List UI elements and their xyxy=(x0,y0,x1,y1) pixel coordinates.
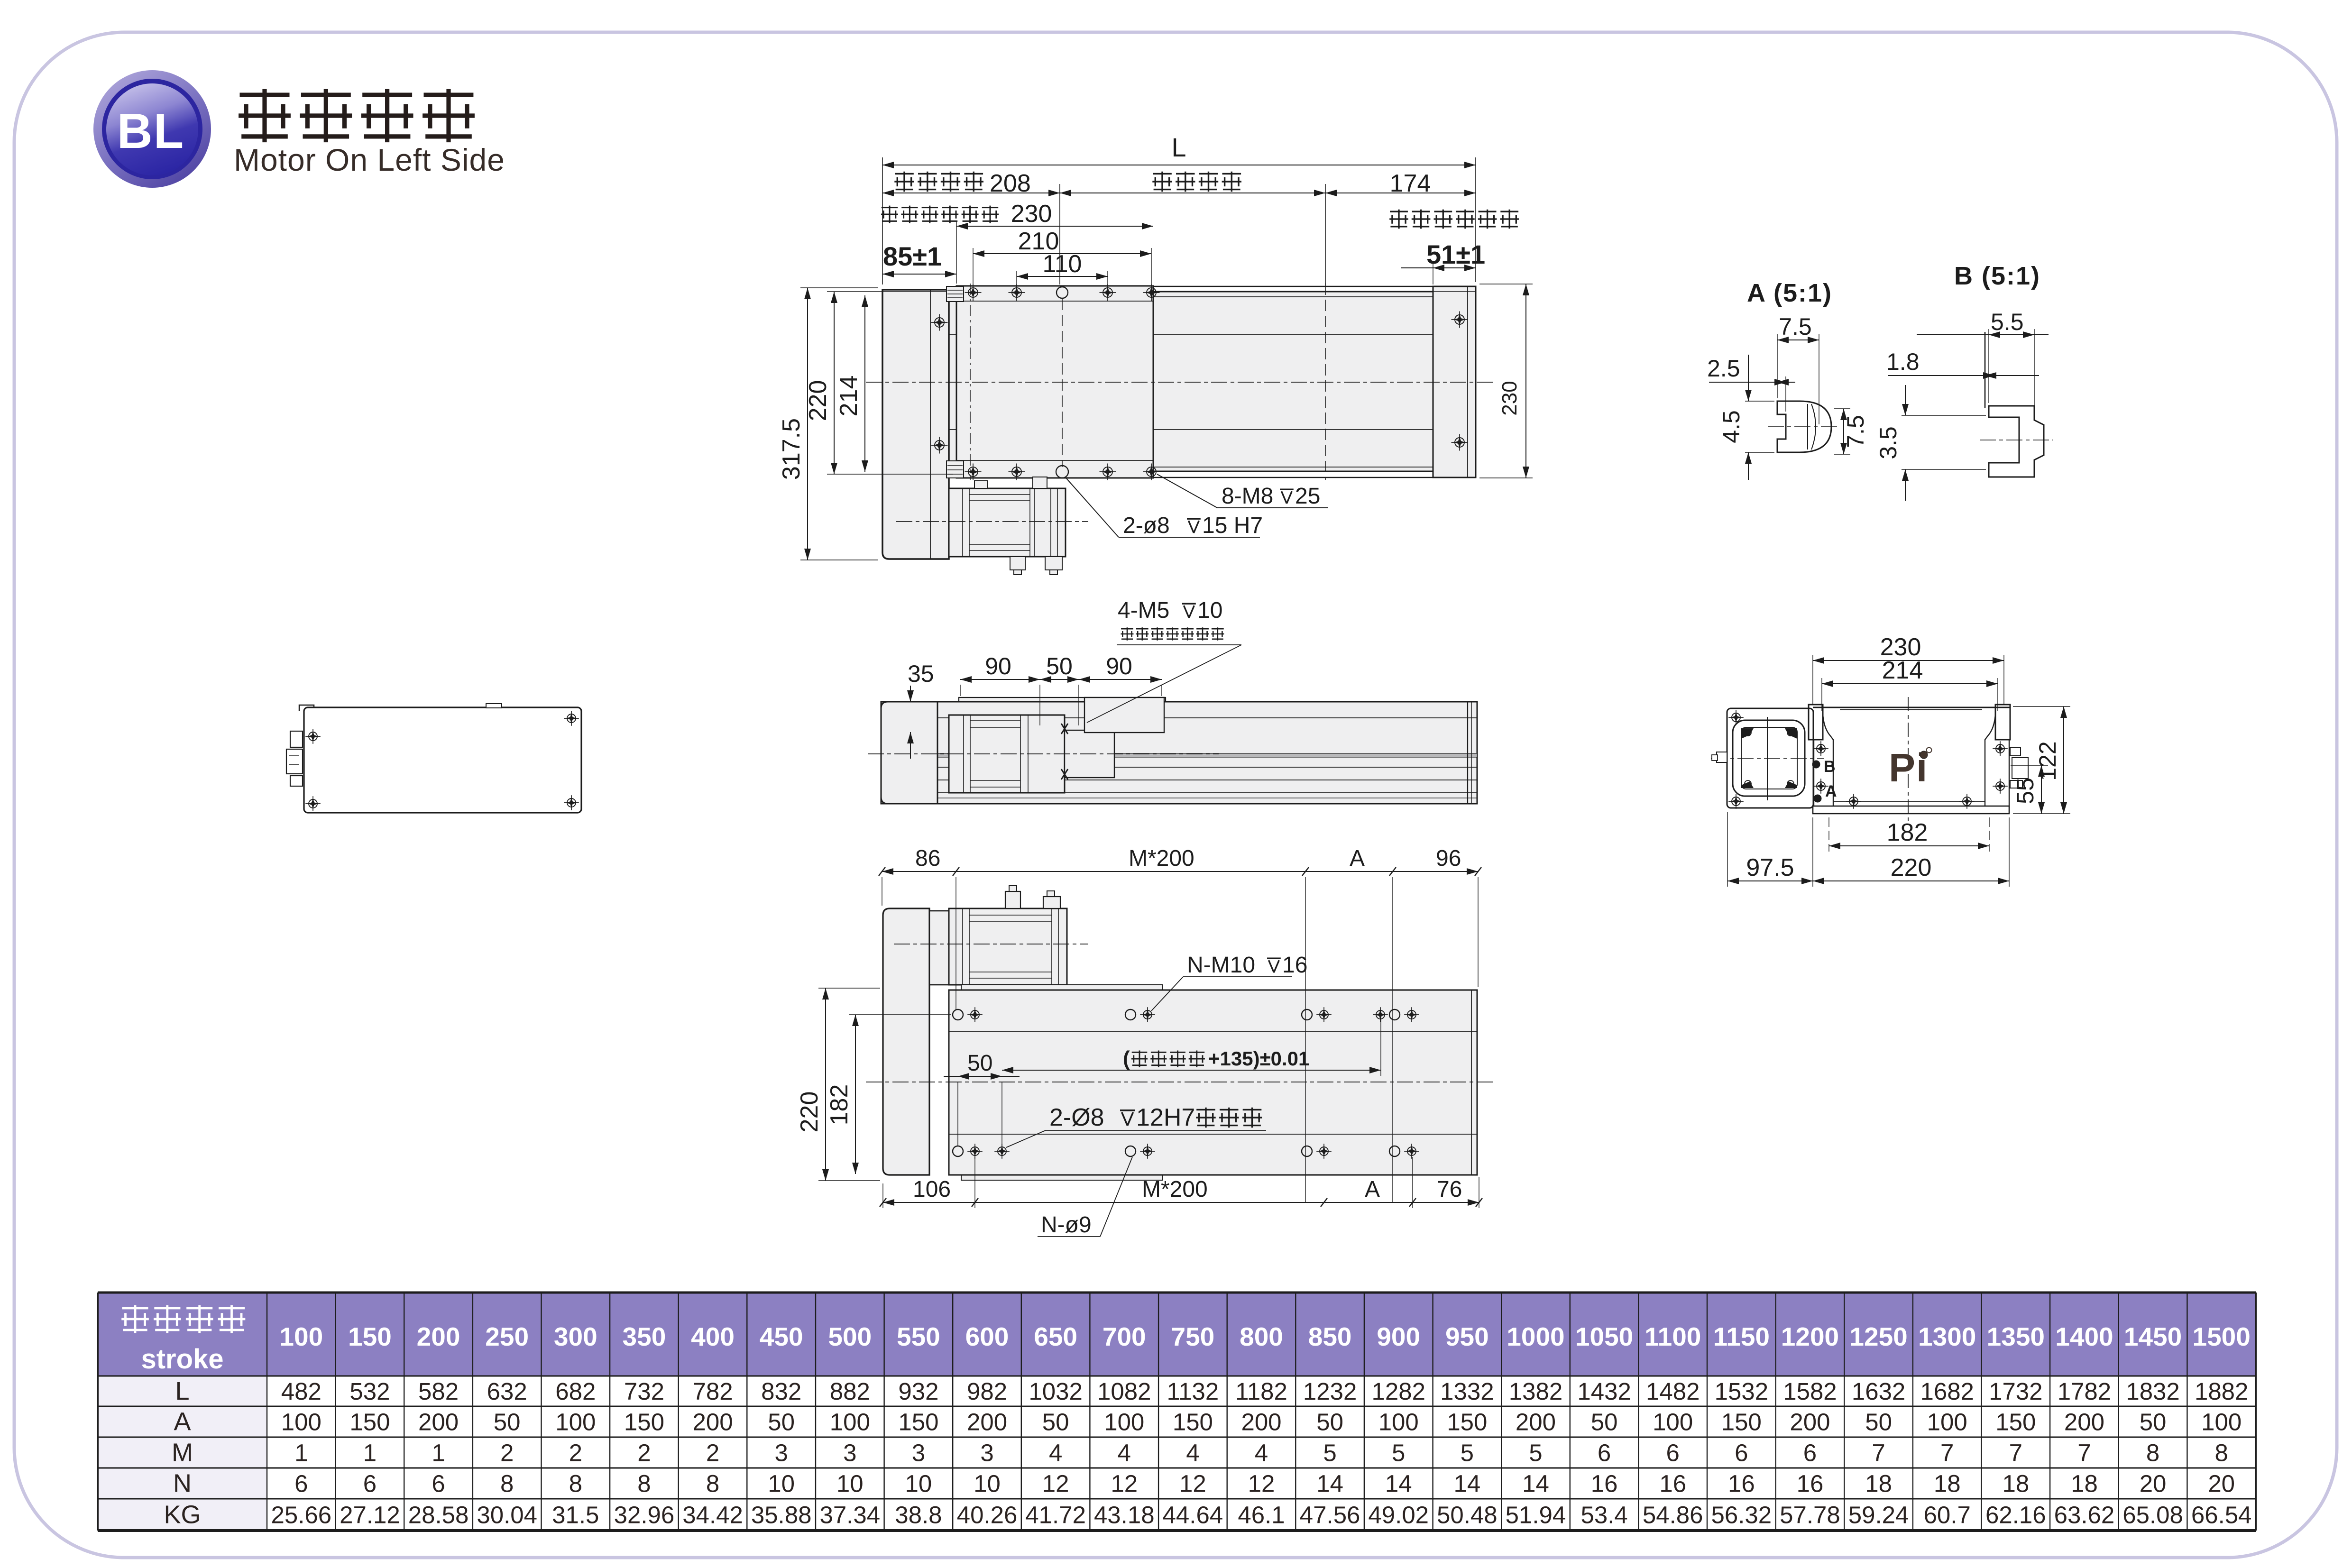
svg-text:4: 4 xyxy=(1118,1440,1131,1467)
svg-text:100: 100 xyxy=(555,1409,596,1436)
svg-text:1132: 1132 xyxy=(1167,1378,1219,1405)
svg-text:L: L xyxy=(1171,132,1186,162)
svg-text:BL: BL xyxy=(117,104,185,159)
svg-text:6: 6 xyxy=(1666,1440,1680,1467)
svg-text:56.32: 56.32 xyxy=(1711,1502,1772,1529)
svg-text:200: 200 xyxy=(692,1409,733,1436)
svg-text:57.78: 57.78 xyxy=(1780,1502,1840,1529)
svg-text:100: 100 xyxy=(1104,1409,1144,1436)
svg-text:4: 4 xyxy=(1255,1440,1268,1467)
svg-text:60.7: 60.7 xyxy=(1924,1502,1971,1529)
svg-text:750: 750 xyxy=(1171,1322,1214,1351)
svg-text:47.56: 47.56 xyxy=(1300,1502,1360,1529)
svg-text:B: B xyxy=(1824,758,1836,776)
svg-text:7: 7 xyxy=(2077,1440,2091,1467)
svg-text:M*200: M*200 xyxy=(1129,846,1194,871)
svg-text:A: A xyxy=(174,1408,191,1436)
svg-text:25.66: 25.66 xyxy=(271,1502,331,1529)
svg-text:800: 800 xyxy=(1240,1322,1283,1351)
svg-text:100: 100 xyxy=(1927,1409,1967,1436)
svg-text:300: 300 xyxy=(554,1322,597,1351)
svg-text:14: 14 xyxy=(1453,1470,1480,1497)
svg-text:100: 100 xyxy=(1653,1409,1693,1436)
svg-text:12: 12 xyxy=(1179,1470,1206,1497)
svg-text:174: 174 xyxy=(1390,170,1431,197)
svg-text:49.02: 49.02 xyxy=(1368,1502,1429,1529)
svg-text:1200: 1200 xyxy=(1781,1322,1839,1351)
svg-text:A: A xyxy=(1365,1177,1380,1202)
svg-text:1032: 1032 xyxy=(1029,1378,1082,1405)
svg-text:7: 7 xyxy=(1872,1440,1885,1467)
svg-text:63.62: 63.62 xyxy=(2054,1502,2115,1529)
svg-text:stroke: stroke xyxy=(141,1344,223,1375)
svg-text:30.04: 30.04 xyxy=(477,1502,537,1529)
svg-text:220: 220 xyxy=(804,380,832,422)
svg-text:1150: 1150 xyxy=(1713,1322,1770,1351)
svg-text:150: 150 xyxy=(1995,1409,2036,1436)
svg-text:182: 182 xyxy=(826,1084,853,1126)
svg-text:400: 400 xyxy=(691,1322,735,1351)
svg-text:1782: 1782 xyxy=(2058,1378,2111,1405)
svg-text:96: 96 xyxy=(1436,846,1461,871)
svg-text:14: 14 xyxy=(1316,1470,1343,1497)
svg-text:10: 10 xyxy=(1197,598,1222,623)
svg-text:6: 6 xyxy=(432,1470,445,1497)
svg-text:950: 950 xyxy=(1445,1322,1489,1351)
svg-text:200: 200 xyxy=(2064,1409,2104,1436)
svg-text:51±1: 51±1 xyxy=(1426,239,1485,269)
svg-text:150: 150 xyxy=(348,1322,392,1351)
svg-text:16: 16 xyxy=(1659,1470,1686,1497)
svg-text:200: 200 xyxy=(1516,1409,1556,1436)
svg-text:2-ø8: 2-ø8 xyxy=(1123,513,1170,538)
svg-text:200: 200 xyxy=(1241,1409,1281,1436)
svg-text:7.5: 7.5 xyxy=(1842,415,1869,448)
svg-text:1382: 1382 xyxy=(1509,1378,1562,1405)
svg-text:1300: 1300 xyxy=(1918,1322,1976,1351)
svg-text:317.5: 317.5 xyxy=(778,418,805,480)
svg-text:16: 16 xyxy=(1282,953,1307,978)
svg-text:3: 3 xyxy=(774,1440,788,1467)
svg-text:32.96: 32.96 xyxy=(614,1502,675,1529)
svg-text:41.72: 41.72 xyxy=(1025,1502,1086,1529)
svg-text:59.24: 59.24 xyxy=(1848,1502,1909,1529)
svg-text:106: 106 xyxy=(913,1177,951,1202)
svg-text:(: ( xyxy=(1123,1047,1130,1070)
svg-text:1582: 1582 xyxy=(1783,1378,1837,1405)
svg-text:150: 150 xyxy=(624,1409,664,1436)
svg-text:27.12: 27.12 xyxy=(340,1502,400,1529)
svg-text:8: 8 xyxy=(2146,1440,2159,1467)
svg-text:882: 882 xyxy=(830,1378,870,1405)
svg-text:46.1: 46.1 xyxy=(1238,1502,1285,1529)
svg-text:20: 20 xyxy=(2140,1470,2167,1497)
svg-text:43.18: 43.18 xyxy=(1094,1502,1155,1529)
svg-text:832: 832 xyxy=(761,1378,801,1405)
svg-text:450: 450 xyxy=(760,1322,803,1351)
svg-text:A: A xyxy=(1825,782,1837,800)
svg-text:53.4: 53.4 xyxy=(1580,1502,1627,1529)
svg-text:4: 4 xyxy=(1186,1440,1199,1467)
svg-text:M: M xyxy=(172,1439,193,1467)
svg-text:700: 700 xyxy=(1102,1322,1146,1351)
svg-text:38.8: 38.8 xyxy=(895,1502,942,1529)
svg-text:8-M8: 8-M8 xyxy=(1222,484,1273,509)
svg-text:18: 18 xyxy=(2002,1470,2029,1497)
svg-text:35.88: 35.88 xyxy=(751,1502,812,1529)
svg-text:2: 2 xyxy=(706,1440,719,1467)
svg-text:50: 50 xyxy=(1865,1409,1892,1436)
svg-text:8: 8 xyxy=(637,1470,651,1497)
svg-text:97.5: 97.5 xyxy=(1746,854,1794,881)
svg-text:982: 982 xyxy=(967,1378,1007,1405)
svg-text:200: 200 xyxy=(417,1322,460,1351)
svg-text:85±1: 85±1 xyxy=(883,241,942,271)
svg-text:55: 55 xyxy=(2012,778,2039,804)
svg-text:2.5: 2.5 xyxy=(1707,355,1740,382)
svg-text:76: 76 xyxy=(1437,1177,1462,1202)
svg-text:+135)±0.01: +135)±0.01 xyxy=(1208,1047,1309,1070)
svg-text:M*200: M*200 xyxy=(1142,1177,1208,1202)
svg-text:150: 150 xyxy=(1447,1409,1487,1436)
svg-text:1350: 1350 xyxy=(1987,1322,2045,1351)
svg-text:350: 350 xyxy=(623,1322,666,1351)
svg-text:18: 18 xyxy=(2071,1470,2098,1497)
svg-text:1482: 1482 xyxy=(1646,1378,1700,1405)
svg-text:54.86: 54.86 xyxy=(1643,1502,1703,1529)
svg-text:250: 250 xyxy=(485,1322,529,1351)
svg-text:25: 25 xyxy=(1295,484,1320,509)
svg-text:6: 6 xyxy=(1803,1440,1817,1467)
svg-text:12: 12 xyxy=(1042,1470,1069,1497)
svg-text:230: 230 xyxy=(1011,200,1052,228)
svg-text:3: 3 xyxy=(912,1440,925,1467)
svg-text:1: 1 xyxy=(363,1440,377,1467)
svg-text:200: 200 xyxy=(967,1409,1007,1436)
svg-text:2: 2 xyxy=(569,1440,582,1467)
svg-text:18: 18 xyxy=(1865,1470,1892,1497)
svg-text:4: 4 xyxy=(1049,1440,1062,1467)
svg-text:6: 6 xyxy=(1735,1440,1748,1467)
svg-text:1232: 1232 xyxy=(1303,1378,1357,1405)
svg-text:100: 100 xyxy=(830,1409,870,1436)
svg-text:650: 650 xyxy=(1034,1322,1077,1351)
svg-text:12: 12 xyxy=(1248,1470,1275,1497)
svg-text:1882: 1882 xyxy=(2195,1378,2248,1405)
svg-text:782: 782 xyxy=(692,1378,733,1405)
svg-text:1000: 1000 xyxy=(1507,1322,1564,1351)
svg-text:500: 500 xyxy=(828,1322,872,1351)
svg-text:1450: 1450 xyxy=(2124,1322,2182,1351)
svg-text:14: 14 xyxy=(1385,1470,1412,1497)
svg-text:4-M5: 4-M5 xyxy=(1118,598,1169,623)
svg-text:44.64: 44.64 xyxy=(1163,1502,1223,1529)
svg-text:15 H7: 15 H7 xyxy=(1202,513,1263,538)
svg-text:1500: 1500 xyxy=(2193,1322,2251,1351)
svg-text:2-Ø8: 2-Ø8 xyxy=(1049,1104,1104,1131)
svg-text:40.26: 40.26 xyxy=(957,1502,1018,1529)
svg-text:5.5: 5.5 xyxy=(1991,309,2024,335)
svg-text:632: 632 xyxy=(487,1378,527,1405)
svg-text:50: 50 xyxy=(1042,1409,1069,1436)
svg-text:900: 900 xyxy=(1377,1322,1420,1351)
svg-text:1050: 1050 xyxy=(1575,1322,1633,1351)
svg-text:220: 220 xyxy=(1891,854,1932,881)
svg-text:214: 214 xyxy=(1882,657,1923,684)
svg-text:12H7: 12H7 xyxy=(1136,1104,1195,1131)
svg-text:2: 2 xyxy=(500,1440,514,1467)
svg-text:50: 50 xyxy=(768,1409,795,1436)
svg-text:50: 50 xyxy=(494,1409,521,1436)
svg-text:34.42: 34.42 xyxy=(682,1502,743,1529)
svg-text:182: 182 xyxy=(1887,819,1928,846)
svg-text:50.48: 50.48 xyxy=(1437,1502,1498,1529)
svg-text:200: 200 xyxy=(1790,1409,1830,1436)
svg-text:L: L xyxy=(175,1377,189,1405)
svg-text:150: 150 xyxy=(1721,1409,1762,1436)
svg-text:100: 100 xyxy=(1378,1409,1419,1436)
svg-text:10: 10 xyxy=(905,1470,932,1497)
svg-text:50: 50 xyxy=(2140,1409,2167,1436)
svg-text:20: 20 xyxy=(2208,1470,2235,1497)
svg-text:10: 10 xyxy=(768,1470,795,1497)
svg-text:50: 50 xyxy=(967,1051,992,1076)
svg-text:200: 200 xyxy=(418,1409,459,1436)
svg-text:1100: 1100 xyxy=(1645,1322,1701,1351)
svg-text:100: 100 xyxy=(279,1322,323,1351)
svg-text:8: 8 xyxy=(706,1470,719,1497)
svg-text:N-ø9: N-ø9 xyxy=(1041,1212,1092,1238)
svg-text:5: 5 xyxy=(1461,1440,1474,1467)
svg-text:N-M10: N-M10 xyxy=(1187,953,1255,978)
svg-text:150: 150 xyxy=(349,1409,390,1436)
svg-text:150: 150 xyxy=(1173,1409,1213,1436)
svg-text:90: 90 xyxy=(1106,653,1132,679)
svg-text:16: 16 xyxy=(1591,1470,1618,1497)
svg-text:1432: 1432 xyxy=(1577,1378,1631,1405)
svg-text:214: 214 xyxy=(835,376,863,417)
svg-text:1282: 1282 xyxy=(1372,1378,1425,1405)
svg-text:10: 10 xyxy=(836,1470,864,1497)
svg-text:7: 7 xyxy=(2009,1440,2022,1467)
svg-text:8: 8 xyxy=(569,1470,582,1497)
svg-text:682: 682 xyxy=(555,1378,596,1405)
svg-text:51.94: 51.94 xyxy=(1506,1502,1566,1529)
svg-text:18: 18 xyxy=(1934,1470,1961,1497)
svg-text:932: 932 xyxy=(898,1378,938,1405)
svg-text:6: 6 xyxy=(363,1470,377,1497)
svg-text:850: 850 xyxy=(1308,1322,1352,1351)
svg-text:16: 16 xyxy=(1728,1470,1755,1497)
svg-text:122: 122 xyxy=(2034,741,2061,780)
svg-text:KG: KG xyxy=(164,1501,201,1529)
svg-text:N: N xyxy=(173,1469,192,1498)
svg-text:5: 5 xyxy=(1529,1440,1542,1467)
svg-text:65.08: 65.08 xyxy=(2122,1502,2183,1529)
svg-text:1832: 1832 xyxy=(2126,1378,2179,1405)
svg-text:1632: 1632 xyxy=(1852,1378,1905,1405)
svg-text:28.58: 28.58 xyxy=(408,1502,469,1529)
svg-text:5: 5 xyxy=(1323,1440,1336,1467)
svg-text:482: 482 xyxy=(281,1378,322,1405)
svg-text:3.5: 3.5 xyxy=(1875,426,1902,459)
svg-text:732: 732 xyxy=(624,1378,664,1405)
svg-text:6: 6 xyxy=(294,1470,308,1497)
svg-text:582: 582 xyxy=(418,1378,459,1405)
svg-text:37.34: 37.34 xyxy=(819,1502,880,1529)
svg-text:1182: 1182 xyxy=(1235,1378,1287,1405)
svg-text:100: 100 xyxy=(281,1409,322,1436)
svg-text:150: 150 xyxy=(898,1409,938,1436)
svg-text:3: 3 xyxy=(980,1440,993,1467)
svg-text:66.54: 66.54 xyxy=(2191,1502,2252,1529)
svg-text:14: 14 xyxy=(1522,1470,1549,1497)
svg-text:1732: 1732 xyxy=(1989,1378,2042,1405)
svg-text:62.16: 62.16 xyxy=(1985,1502,2046,1529)
svg-text:7.5: 7.5 xyxy=(1779,313,1812,340)
svg-text:50: 50 xyxy=(1316,1409,1343,1436)
svg-text:10: 10 xyxy=(974,1470,1001,1497)
svg-text:4.5: 4.5 xyxy=(1718,410,1745,443)
svg-text:230: 230 xyxy=(1498,381,1521,415)
svg-text:50: 50 xyxy=(1046,653,1073,679)
svg-text:7: 7 xyxy=(1940,1440,1954,1467)
svg-text:90: 90 xyxy=(985,653,1011,679)
svg-text:1: 1 xyxy=(432,1440,445,1467)
svg-text:1250: 1250 xyxy=(1849,1322,1907,1351)
svg-text:35: 35 xyxy=(908,660,934,687)
svg-text:1.8: 1.8 xyxy=(1886,348,1920,375)
svg-text:31.5: 31.5 xyxy=(552,1502,599,1529)
svg-text:8: 8 xyxy=(2215,1440,2228,1467)
svg-text:100: 100 xyxy=(2201,1409,2242,1436)
svg-text:600: 600 xyxy=(965,1322,1009,1351)
svg-text:110: 110 xyxy=(1043,250,1082,278)
svg-text:1082: 1082 xyxy=(1097,1378,1151,1405)
svg-text:220: 220 xyxy=(796,1091,823,1133)
svg-text:2: 2 xyxy=(637,1440,651,1467)
svg-text:1332: 1332 xyxy=(1440,1378,1494,1405)
svg-text:1400: 1400 xyxy=(2055,1322,2113,1351)
svg-text:86: 86 xyxy=(915,846,940,871)
svg-text:532: 532 xyxy=(349,1378,390,1405)
svg-text:550: 550 xyxy=(897,1322,940,1351)
svg-text:1682: 1682 xyxy=(1920,1378,1974,1405)
svg-text:16: 16 xyxy=(1797,1470,1824,1497)
svg-text:A: A xyxy=(1350,846,1365,871)
svg-text:50: 50 xyxy=(1591,1409,1618,1436)
svg-text:8: 8 xyxy=(500,1470,514,1497)
svg-text:12: 12 xyxy=(1111,1470,1138,1497)
svg-text:A (5:1): A (5:1) xyxy=(1747,279,1832,307)
svg-text:Motor On Left Side: Motor On Left Side xyxy=(234,142,505,177)
svg-text:B (5:1): B (5:1) xyxy=(1954,262,2040,290)
svg-text:1532: 1532 xyxy=(1715,1378,1768,1405)
svg-text:6: 6 xyxy=(1598,1440,1611,1467)
svg-text:208: 208 xyxy=(990,170,1031,197)
svg-text:5: 5 xyxy=(1392,1440,1405,1467)
svg-text:1: 1 xyxy=(294,1440,308,1467)
svg-text:3: 3 xyxy=(843,1440,856,1467)
